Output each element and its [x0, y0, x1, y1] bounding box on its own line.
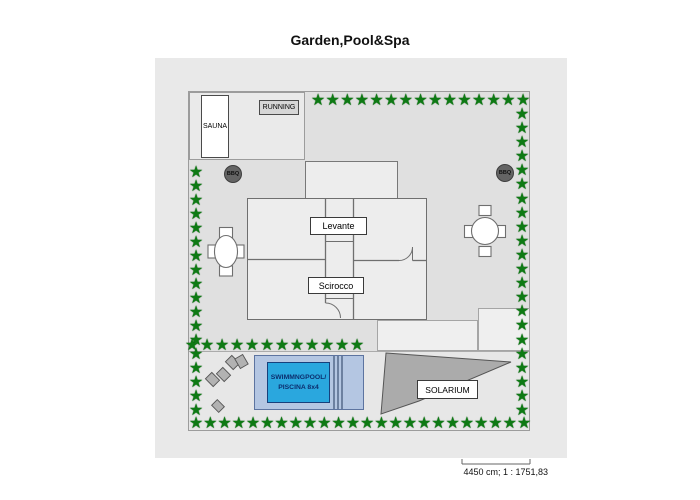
garden-plan-page: Garden,Pool&Spa [0, 0, 700, 500]
bbq-left-label: BBQ [227, 171, 239, 177]
tree-star: ★ [360, 415, 374, 431]
tree-star: ★ [217, 415, 231, 431]
tree-star: ★ [245, 337, 259, 353]
sauna-label: SAUNA [203, 123, 227, 130]
tree-star: ★ [487, 92, 501, 108]
tree-star: ★ [305, 337, 319, 353]
tree-star: ★ [399, 92, 413, 108]
tree-star: ★ [215, 337, 229, 353]
tree-star: ★ [403, 415, 417, 431]
tree-star: ★ [260, 415, 274, 431]
levante-text: Levante [322, 221, 354, 231]
tree-star: ★ [185, 337, 199, 353]
room-label-levante[interactable]: Levante [310, 217, 367, 235]
swimming-pool[interactable]: SWIMMNGPOOL/ PISCINA 8x4 [267, 362, 330, 403]
running-track-label[interactable]: RUNNING [259, 100, 299, 115]
tree-star: ★ [289, 415, 303, 431]
tree-star: ★ [317, 415, 331, 431]
tree-star: ★ [275, 337, 289, 353]
bbq-right-label: BBQ [499, 170, 511, 176]
tree-star: ★ [346, 415, 360, 431]
tree-star: ★ [501, 92, 515, 108]
tree-star: ★ [428, 92, 442, 108]
tree-star: ★ [335, 337, 349, 353]
tree-star: ★ [246, 415, 260, 431]
scirocco-text: Scirocco [319, 281, 354, 291]
tree-star: ★ [460, 415, 474, 431]
room-label-scirocco[interactable]: Scirocco [308, 277, 364, 294]
bbq-right[interactable]: BBQ [496, 164, 514, 182]
tree-star: ★ [230, 337, 244, 353]
tree-star: ★ [517, 415, 531, 431]
tree-star: ★ [311, 92, 325, 108]
tree-star: ★ [443, 92, 457, 108]
running-label: RUNNING [263, 104, 296, 111]
tree-star: ★ [189, 402, 203, 418]
terrace [377, 320, 478, 351]
tree-star: ★ [457, 92, 471, 108]
tree-star: ★ [503, 415, 517, 431]
solarium-label[interactable]: SOLARIUM [417, 380, 478, 399]
tree-star: ★ [320, 337, 334, 353]
page-title: Garden,Pool&Spa [0, 32, 700, 48]
bbq-left[interactable]: BBQ [224, 165, 242, 183]
tree-star: ★ [417, 415, 431, 431]
tree-star: ★ [374, 415, 388, 431]
tree-star: ★ [472, 92, 486, 108]
tree-star: ★ [350, 337, 364, 353]
tree-star: ★ [384, 92, 398, 108]
tree-star: ★ [369, 92, 383, 108]
tree-star: ★ [200, 337, 214, 353]
house-extension[interactable] [305, 161, 398, 199]
tree-star: ★ [355, 92, 369, 108]
solarium-text: SOLARIUM [425, 385, 469, 395]
pool-label-line1: SWIMMNGPOOL/ [271, 373, 327, 382]
pool-label-line2: PISCINA 8x4 [278, 383, 319, 392]
tree-star: ★ [325, 92, 339, 108]
tree-star: ★ [388, 415, 402, 431]
tree-star: ★ [203, 415, 217, 431]
tree-star: ★ [290, 337, 304, 353]
tree-star: ★ [446, 415, 460, 431]
tree-star: ★ [413, 92, 427, 108]
scale-note: 4450 cm; 1 : 1751,83 [420, 467, 548, 477]
tree-star: ★ [431, 415, 445, 431]
tree-star: ★ [303, 415, 317, 431]
tree-star: ★ [274, 415, 288, 431]
tree-star: ★ [340, 92, 354, 108]
tree-star: ★ [474, 415, 488, 431]
tree-star: ★ [232, 415, 246, 431]
tree-star: ★ [488, 415, 502, 431]
tree-star: ★ [331, 415, 345, 431]
tree-star: ★ [260, 337, 274, 353]
scale-bar [462, 459, 530, 464]
sauna-cabin[interactable]: SAUNA [201, 95, 229, 158]
